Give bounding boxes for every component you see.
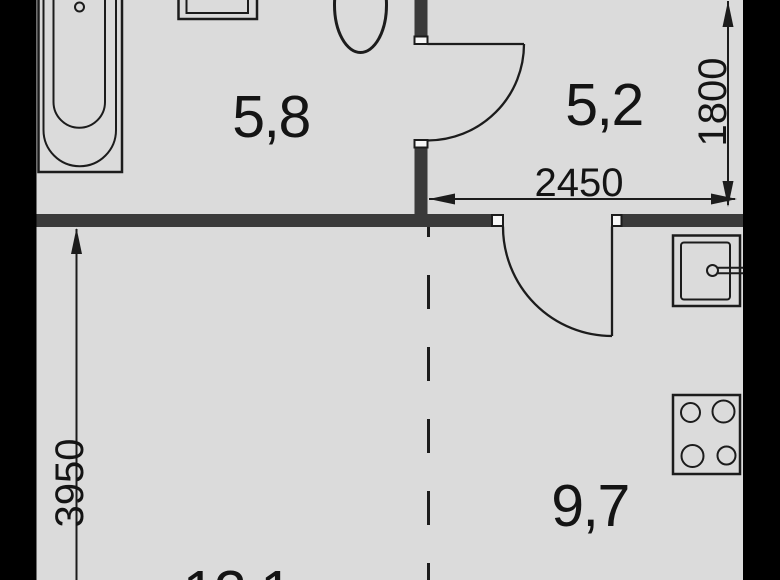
dimension-label-hallway-width: 2450 xyxy=(535,161,624,205)
room-label-hallway: 5,2 xyxy=(565,72,643,138)
dimension-label-hallway-height: 1800 xyxy=(691,58,735,147)
wall-vertical-top xyxy=(415,0,428,37)
room-label-living-room: 12,1 xyxy=(183,559,292,580)
jamb-hall-left xyxy=(492,215,503,226)
wall-horizontal-right xyxy=(621,214,743,227)
jamb-bathroom-top xyxy=(415,37,428,45)
crop-mask-left xyxy=(0,0,37,580)
wall-vertical-lower xyxy=(415,148,428,227)
floor-plan: 2450 1800 3950 5,8 5,2 9,7 12,1 xyxy=(0,0,780,580)
jamb-hall-right xyxy=(612,215,622,226)
crop-mask-right xyxy=(743,0,780,580)
room-label-bathroom: 5,8 xyxy=(232,84,310,150)
dimension-label-living-room-height: 3950 xyxy=(48,439,92,528)
floor-plan-drawing: 2450 1800 3950 5,8 5,2 9,7 12,1 xyxy=(0,0,780,580)
room-label-kitchen: 9,7 xyxy=(551,473,629,539)
jamb-bathroom-bottom xyxy=(415,140,428,148)
